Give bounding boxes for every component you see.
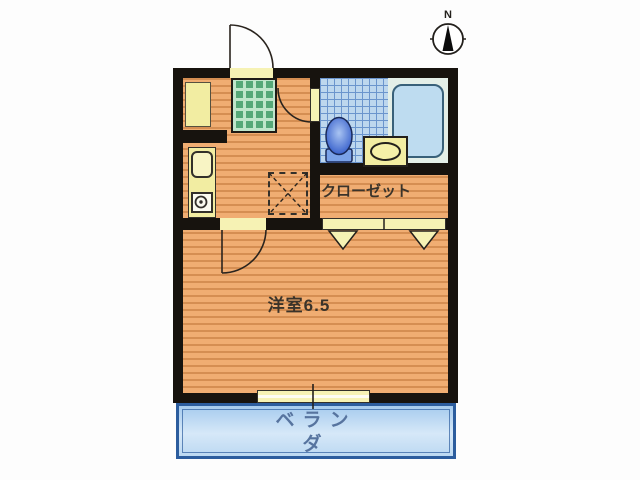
compass-north-label: N — [444, 9, 452, 21]
room-door-sill — [220, 218, 266, 230]
entrance-door-swing — [230, 25, 273, 68]
kitchen-counter — [188, 147, 216, 218]
bathroom-door-leaf — [310, 88, 320, 122]
balcony-label: ベランダ — [274, 409, 358, 457]
closet-label: クローゼット — [321, 180, 411, 201]
floor-plan: クローゼット 洋室6.5 ベランダ — [0, 0, 640, 480]
kitchen-sink-icon — [191, 151, 213, 178]
interior-wall-stub — [173, 130, 227, 143]
refrigerator-space-icon — [268, 172, 308, 215]
entrance-door-sill — [230, 68, 273, 78]
compass-needle — [443, 25, 454, 51]
wash-basin-icon — [363, 136, 408, 167]
sliding-window — [257, 390, 370, 403]
shoe-cabinet — [185, 82, 211, 127]
balcony: ベランダ — [176, 403, 456, 459]
compass-icon: N — [430, 9, 466, 54]
stove-burner-icon — [191, 192, 213, 213]
wash-basin-bowl — [370, 142, 401, 161]
western-room-label: 洋室6.5 — [234, 291, 364, 316]
closet-folding-doors — [322, 218, 446, 230]
entrance-mat — [231, 78, 277, 133]
